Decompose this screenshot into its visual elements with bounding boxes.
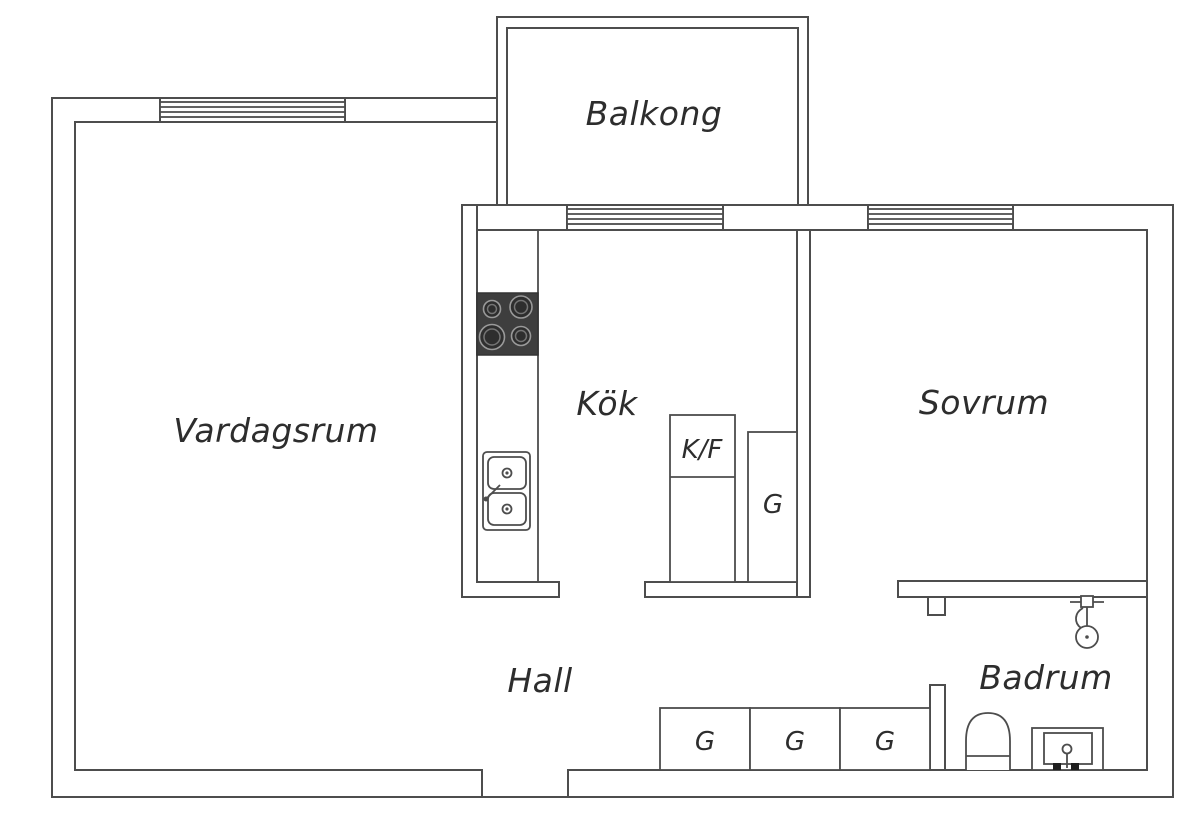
toilet-icon xyxy=(966,713,1010,770)
sink-faucet-base xyxy=(484,497,489,502)
bathroom-sink-icon xyxy=(1032,728,1103,770)
kitchen-bottom-wall xyxy=(645,582,797,597)
window-frame xyxy=(567,209,723,224)
kitchen-sink-icon xyxy=(483,452,530,530)
label-hall: Hall xyxy=(507,661,572,700)
shower-head-dot xyxy=(1085,635,1089,639)
bathroom-door-jamb xyxy=(928,597,945,615)
kitchen-wardrobe: G xyxy=(748,432,797,582)
label-balcony: Balkong xyxy=(586,94,723,133)
label-living-room: Vardagsrum xyxy=(173,411,378,450)
sink-drain-dot xyxy=(505,471,508,474)
hall-wardrobe-3: G xyxy=(840,708,930,770)
floorplan-canvas: K/F G G G G Balkong Vardagsrum xyxy=(0,0,1200,834)
stove-burner xyxy=(510,296,532,318)
vanity-knob xyxy=(1053,763,1061,770)
floorplan-page: K/F G G G G Balkong Vardagsrum xyxy=(0,0,1200,834)
label-bedroom: Sovrum xyxy=(919,383,1049,422)
toilet-outline xyxy=(966,713,1010,770)
vanity-knob xyxy=(1071,763,1079,770)
kitchen-bedroom-wall xyxy=(797,230,810,597)
label-kitchen: Kök xyxy=(576,384,639,423)
window-frame xyxy=(160,102,345,117)
shower-mount xyxy=(1081,596,1093,607)
label-kf: K/F xyxy=(682,435,724,465)
bathroom-left-wall xyxy=(930,685,945,770)
shower-hose xyxy=(1076,608,1083,628)
label-g-kitchen: G xyxy=(763,490,783,520)
shower-icon xyxy=(1070,596,1104,648)
stove-icon xyxy=(477,293,538,355)
fridge-freezer-closet: K/F xyxy=(670,415,735,582)
hall-wardrobe-2: G xyxy=(750,708,840,770)
window-frame xyxy=(868,209,1013,224)
kitchen-left-wall xyxy=(462,205,559,597)
label-g-hall-3: G xyxy=(875,727,895,757)
label-g-hall-1: G xyxy=(695,727,715,757)
bathroom-top-wall xyxy=(898,581,1147,597)
vanity-faucet xyxy=(1063,745,1072,754)
hall-wardrobe-1: G xyxy=(660,708,750,770)
label-bathroom: Badrum xyxy=(979,658,1112,697)
sink-drain-dot xyxy=(505,507,508,510)
stove-burner xyxy=(512,327,531,346)
stove-burner xyxy=(484,301,501,318)
label-g-hall-2: G xyxy=(785,727,805,757)
